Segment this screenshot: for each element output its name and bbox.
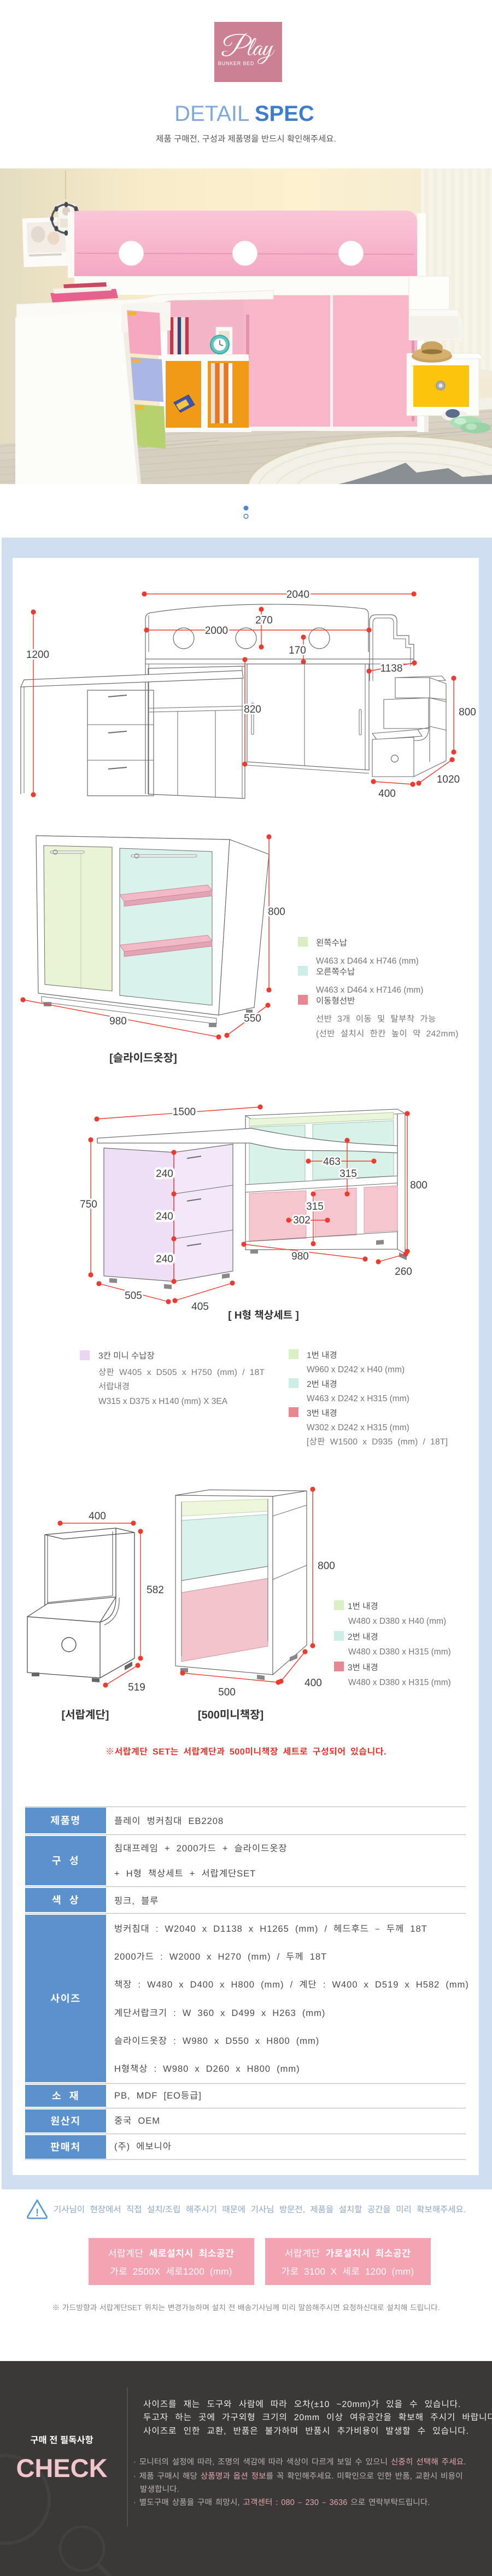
svg-text:!: ! [36, 2207, 39, 2219]
svg-text:800: 800 [459, 707, 476, 718]
svg-text:170: 170 [289, 645, 306, 656]
svg-text:800: 800 [410, 1180, 427, 1191]
svg-text:519: 519 [128, 1682, 145, 1693]
svg-text:980: 980 [109, 1016, 127, 1027]
svg-text:260: 260 [395, 1266, 412, 1278]
svg-text:800: 800 [268, 906, 285, 918]
svg-text:W480 x D380 x H315 (mm): W480 x D380 x H315 (mm) [348, 1678, 451, 1687]
svg-text:W960 x D242 x H40 (mm): W960 x D242 x H40 (mm) [307, 1365, 405, 1374]
svg-text:240: 240 [156, 1168, 173, 1180]
svg-text:W315 x D375 x H140 (mm) X 3EA: W315 x D375 x H140 (mm) X 3EA [98, 1397, 228, 1406]
svg-text:2040: 2040 [286, 589, 309, 601]
svg-text:400: 400 [378, 788, 396, 800]
svg-text:400: 400 [304, 1677, 322, 1689]
svg-text:1500: 1500 [173, 1106, 196, 1118]
svg-text:980: 980 [291, 1251, 309, 1262]
svg-text:1138: 1138 [380, 663, 403, 674]
svg-text:270: 270 [255, 615, 273, 626]
svg-text:582: 582 [147, 1584, 164, 1596]
svg-text:240: 240 [156, 1211, 173, 1222]
svg-text:W463 x D464 x H746 (mm): W463 x D464 x H746 (mm) [316, 957, 419, 966]
svg-text:W480 x D380 x H40 (mm): W480 x D380 x H40 (mm) [348, 1617, 446, 1626]
svg-text:505: 505 [125, 1290, 142, 1302]
svg-text:315: 315 [339, 1168, 357, 1180]
svg-text:315: 315 [306, 1201, 324, 1213]
svg-text:800: 800 [318, 1560, 335, 1572]
svg-text:400: 400 [89, 1511, 106, 1522]
svg-text:405: 405 [191, 1301, 209, 1313]
svg-text:550: 550 [244, 1013, 261, 1024]
svg-text:W463 x D464 x H7146 (mm): W463 x D464 x H7146 (mm) [316, 986, 423, 995]
svg-text:CHECK: CHECK [16, 2453, 107, 2482]
svg-text:BUNKER BED: BUNKER BED [218, 61, 255, 66]
svg-text:W480 x D380 x H315 (mm): W480 x D380 x H315 (mm) [348, 1647, 451, 1657]
svg-text:750: 750 [80, 1199, 97, 1210]
svg-text:500: 500 [218, 1687, 236, 1698]
svg-text:1200: 1200 [26, 649, 49, 661]
svg-text:463: 463 [323, 1156, 341, 1168]
svg-text:240: 240 [156, 1254, 173, 1265]
svg-text:2000: 2000 [205, 625, 228, 637]
svg-text:820: 820 [244, 704, 261, 715]
svg-text:DETAIL SPEC: DETAIL SPEC [174, 102, 314, 126]
svg-text:W463 x D242 x H315 (mm): W463 x D242 x H315 (mm) [307, 1394, 409, 1403]
svg-text:W302 x D242 x H315 (mm): W302 x D242 x H315 (mm) [307, 1423, 409, 1432]
svg-text:1020: 1020 [437, 774, 460, 785]
svg-text:302: 302 [293, 1215, 311, 1226]
